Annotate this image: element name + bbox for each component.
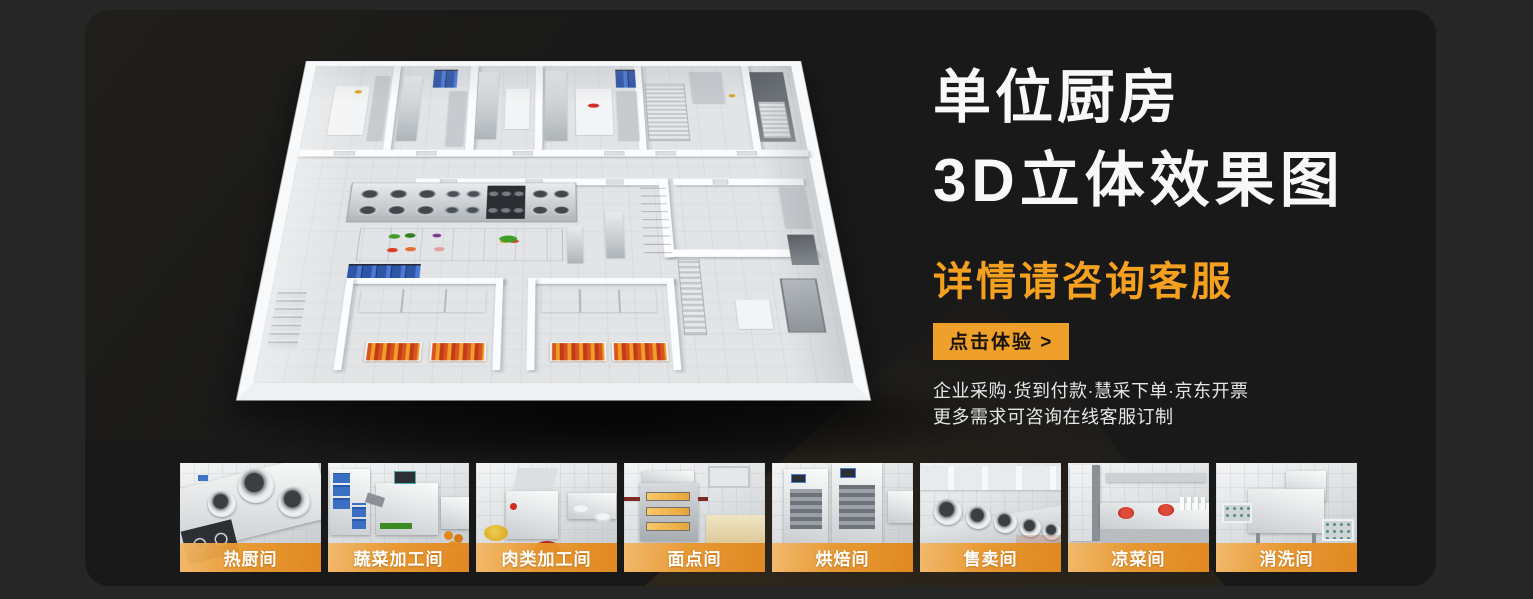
oven-tray-slot xyxy=(646,507,690,516)
plan-door xyxy=(604,151,625,156)
right-wall-equipment xyxy=(778,187,812,228)
oven-hood xyxy=(642,471,694,483)
food-plate xyxy=(594,511,612,522)
oven-cabinet xyxy=(784,469,828,545)
produce-dots xyxy=(444,531,453,540)
plan-equipment-counter xyxy=(617,91,640,140)
hero-text-block: 单位厨房 3D立体效果图 详情请咨询客服 点击体验 > 企业采购·货到付款·慧采… xyxy=(933,68,1413,430)
steel-pillar-station xyxy=(605,212,624,258)
wall-window xyxy=(708,466,750,488)
kettle-icon xyxy=(994,512,1017,533)
display-case xyxy=(429,342,486,361)
display-case xyxy=(612,342,669,361)
feature-lines: 企业采购·货到付款·慧采下单·京东开票 更多需求可咨询在线客服订制 xyxy=(933,378,1413,430)
oven-tray-slot xyxy=(646,492,690,501)
cook-line xyxy=(346,183,577,222)
wall-shelf xyxy=(1106,473,1206,482)
promo-card: 单位厨房 3D立体效果图 详情请咨询客服 点击体验 > 企业采购·货到付款·慧采… xyxy=(85,10,1436,586)
upright-fridge xyxy=(1070,465,1100,541)
bottle-cluster xyxy=(1180,497,1206,510)
food-plate xyxy=(572,503,590,514)
thumb-hot-kitchen[interactable]: 热厨间 xyxy=(180,463,321,572)
room-counter xyxy=(542,289,656,312)
pot-icon xyxy=(238,469,274,503)
thumb-vegetable-processing[interactable]: 蔬菜加工间 xyxy=(328,463,469,572)
plan-door xyxy=(334,151,355,156)
back-equipment xyxy=(888,491,913,523)
shelving-rack-column xyxy=(678,260,706,335)
page-background: 单位厨房 3D立体效果图 详情请咨询客服 点击体验 > 企业采购·货到付款·慧采… xyxy=(0,0,1533,599)
feature-line-2: 更多需求可咨询在线客服订制 xyxy=(933,404,1413,430)
steel-table xyxy=(735,300,773,329)
serving-room-1-wall xyxy=(492,278,503,370)
plan-divider xyxy=(535,66,543,150)
food-plate xyxy=(405,247,416,251)
thumb-label: 售卖间 xyxy=(920,543,1061,572)
dishwasher-body xyxy=(1248,489,1324,533)
cart-stack xyxy=(267,289,306,348)
plan-equipment-blue-machine xyxy=(615,70,635,88)
thumb-meat-processing[interactable]: 肉类加工间 xyxy=(476,463,617,572)
serving-room-2-wall xyxy=(666,278,681,370)
plan-door xyxy=(513,151,533,156)
dish-basket xyxy=(1222,503,1252,523)
room-gallery: 热厨间 蔬菜加工间 xyxy=(180,463,1357,572)
red-plate xyxy=(1158,504,1174,516)
kettle-icon xyxy=(966,506,991,529)
bottom-right-fridge xyxy=(780,279,826,333)
serving-room-2-wall xyxy=(528,278,674,284)
plan-equipment-table xyxy=(575,89,613,135)
plan-equipment-cabinet xyxy=(544,71,567,141)
plan-equipment-blue-machine xyxy=(433,70,459,88)
pot-icon xyxy=(278,487,310,517)
thumb-label: 面点间 xyxy=(624,543,765,572)
thumb-cold-dish-room[interactable]: 凉菜间 xyxy=(1068,463,1209,572)
machine-screen xyxy=(394,471,416,484)
feature-line-1: 企业采购·货到付款·慧采下单·京东开票 xyxy=(933,378,1413,404)
prep-side-station xyxy=(568,227,584,263)
red-plate xyxy=(1118,507,1134,519)
thumb-serving-room[interactable]: 售卖间 xyxy=(920,463,1061,572)
thumb-washing-room[interactable]: 消洗间 xyxy=(1216,463,1357,572)
thumb-label: 蔬菜加工间 xyxy=(328,543,469,572)
red-button xyxy=(510,503,517,510)
oven-tray-slot xyxy=(646,522,690,531)
plan-equipment-cabinet xyxy=(475,72,498,139)
floor-plan-building xyxy=(237,61,870,400)
thumb-label: 凉菜间 xyxy=(1068,543,1209,572)
noodle-pile xyxy=(484,525,508,541)
wood-table xyxy=(706,515,765,545)
deck-oven xyxy=(640,483,698,541)
plan-door xyxy=(655,151,676,156)
plan-door xyxy=(416,151,437,156)
cook-line-pots xyxy=(529,186,572,218)
pot-icon xyxy=(208,491,236,517)
page-title-line2: 3D立体效果图 xyxy=(933,151,1413,211)
food-greens xyxy=(404,233,415,238)
plan-hall-back-wall xyxy=(673,178,804,185)
kettle-icon xyxy=(934,499,962,525)
thumb-label: 肉类加工间 xyxy=(476,543,617,572)
food-greens xyxy=(388,234,400,239)
plan-corridor-wall xyxy=(298,150,809,157)
plan-door xyxy=(606,179,623,184)
oven-screen xyxy=(840,468,856,478)
plan-equipment-cabinet xyxy=(690,72,725,103)
grinder-machine xyxy=(506,491,558,539)
prep-table xyxy=(356,228,563,261)
oven-cabinet xyxy=(832,463,882,547)
vent-band xyxy=(790,489,822,529)
page-title-line1: 单位厨房 xyxy=(933,68,1413,127)
plan-door xyxy=(737,151,758,156)
thumb-label: 烘焙间 xyxy=(772,543,913,572)
plan-food-meat xyxy=(588,103,599,107)
food-plate xyxy=(433,234,442,238)
dark-equipment-column xyxy=(640,186,672,253)
serving-room-2-wall xyxy=(527,278,536,370)
room-counter xyxy=(359,289,486,312)
vent-band xyxy=(839,485,875,529)
right-wall-equipment xyxy=(786,235,819,265)
dish-basket xyxy=(1322,519,1354,541)
plan-equipment-table xyxy=(504,89,530,129)
serving-room-1-wall xyxy=(333,278,354,370)
serving-room-1-wall xyxy=(346,278,503,284)
cook-line-pots xyxy=(352,186,441,218)
side-table xyxy=(441,497,469,529)
window-band xyxy=(920,466,1061,490)
blue-crates xyxy=(333,473,350,509)
thumb-label: 热厨间 xyxy=(180,543,321,572)
food-meat xyxy=(433,247,444,251)
hero-subtitle: 详情请咨询客服 xyxy=(933,249,1413,307)
cook-line-small-pots xyxy=(441,186,484,218)
thumb-label: 消洗间 xyxy=(1216,543,1357,572)
plan-equipment-counter xyxy=(445,91,467,146)
blue-crates xyxy=(352,503,366,529)
cta-button[interactable]: 点击体验 > xyxy=(933,323,1069,360)
burner-block xyxy=(486,186,526,219)
thumb-baking-room[interactable]: 烘焙间 xyxy=(772,463,913,572)
blue-detail xyxy=(198,475,208,481)
floor-plan-3d xyxy=(237,61,870,400)
plan-equipment-counter xyxy=(396,76,423,141)
food-plate xyxy=(387,248,398,252)
plan-equipment-rack xyxy=(645,84,690,141)
display-case xyxy=(364,342,422,361)
plan-food-item xyxy=(354,90,362,93)
food-vegetables xyxy=(499,236,517,243)
thumb-pastry-room[interactable]: 面点间 xyxy=(624,463,765,572)
plan-food-item xyxy=(729,94,736,97)
display-case xyxy=(551,342,607,361)
plan-equipment-table xyxy=(327,86,369,135)
green-strip xyxy=(380,523,412,529)
oven-screen xyxy=(791,474,806,483)
plan-door xyxy=(712,179,728,184)
